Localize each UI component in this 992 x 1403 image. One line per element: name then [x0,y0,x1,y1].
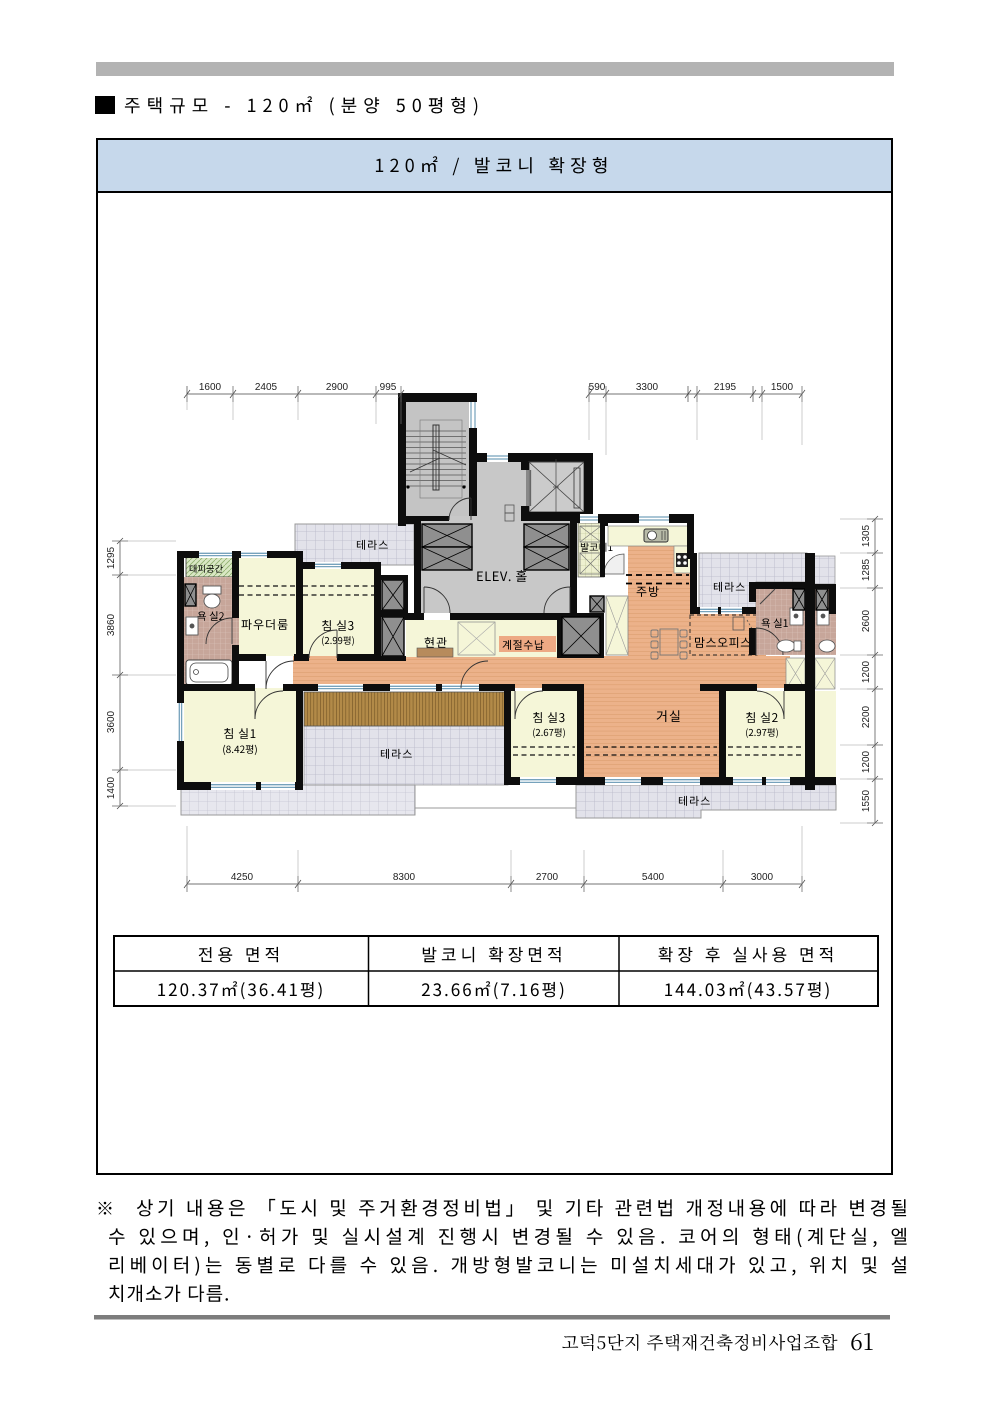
svg-text:1285: 1285 [861,558,872,581]
svg-text:1500: 1500 [771,382,794,393]
svg-text:1305: 1305 [861,524,872,547]
svg-text:995: 995 [380,382,397,393]
svg-text:8300: 8300 [393,872,416,883]
svg-text:590: 590 [589,382,606,393]
svg-text:2200: 2200 [861,705,872,728]
svg-text:3300: 3300 [636,382,659,393]
svg-text:3600: 3600 [106,710,117,733]
svg-text:2900: 2900 [326,382,349,393]
svg-text:1400: 1400 [106,776,117,799]
svg-text:3000: 3000 [751,872,774,883]
svg-text:5400: 5400 [642,872,665,883]
svg-text:1200: 1200 [861,660,872,683]
svg-text:1200: 1200 [861,750,872,773]
svg-text:1600: 1600 [199,382,222,393]
svg-text:2195: 2195 [714,382,737,393]
svg-text:1550: 1550 [861,789,872,812]
svg-text:1295: 1295 [106,546,117,569]
svg-text:2600: 2600 [861,609,872,632]
svg-text:2700: 2700 [536,872,559,883]
svg-text:4250: 4250 [231,872,254,883]
svg-text:3860: 3860 [106,613,117,636]
svg-text:2405: 2405 [255,382,278,393]
